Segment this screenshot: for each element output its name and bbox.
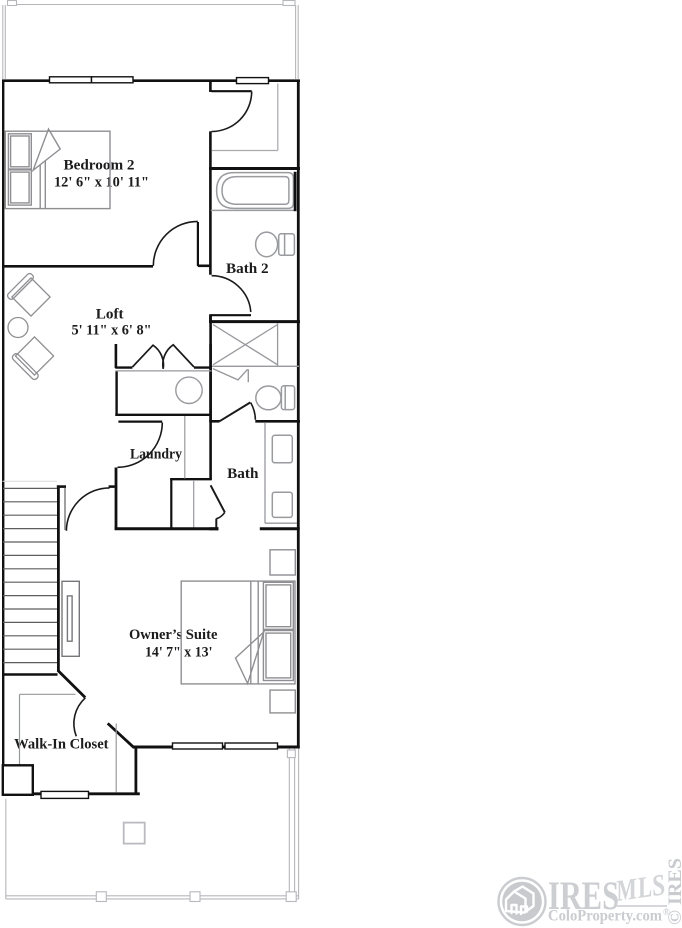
svg-text:MLS: MLS bbox=[613, 868, 668, 908]
svg-text:Owner’s Suite: Owner’s Suite bbox=[129, 626, 218, 643]
svg-text:© IRES: © IRES bbox=[666, 858, 682, 925]
svg-text:14' 7" x 13': 14' 7" x 13' bbox=[145, 644, 213, 661]
svg-text:Bedroom 2: Bedroom 2 bbox=[63, 157, 134, 174]
svg-text:Laundry: Laundry bbox=[130, 447, 183, 463]
svg-text:Loft: Loft bbox=[96, 306, 124, 323]
svg-text:Bath: Bath bbox=[227, 465, 259, 482]
svg-text:5' 11" x 6' 8": 5' 11" x 6' 8" bbox=[72, 322, 152, 339]
svg-text:12' 6" x 10' 11": 12' 6" x 10' 11" bbox=[54, 174, 149, 191]
svg-text:Bath 2: Bath 2 bbox=[226, 260, 269, 277]
svg-text:ColoProperty.com: ColoProperty.com bbox=[548, 908, 662, 925]
svg-text:Walk-In Closet: Walk-In Closet bbox=[14, 737, 109, 753]
